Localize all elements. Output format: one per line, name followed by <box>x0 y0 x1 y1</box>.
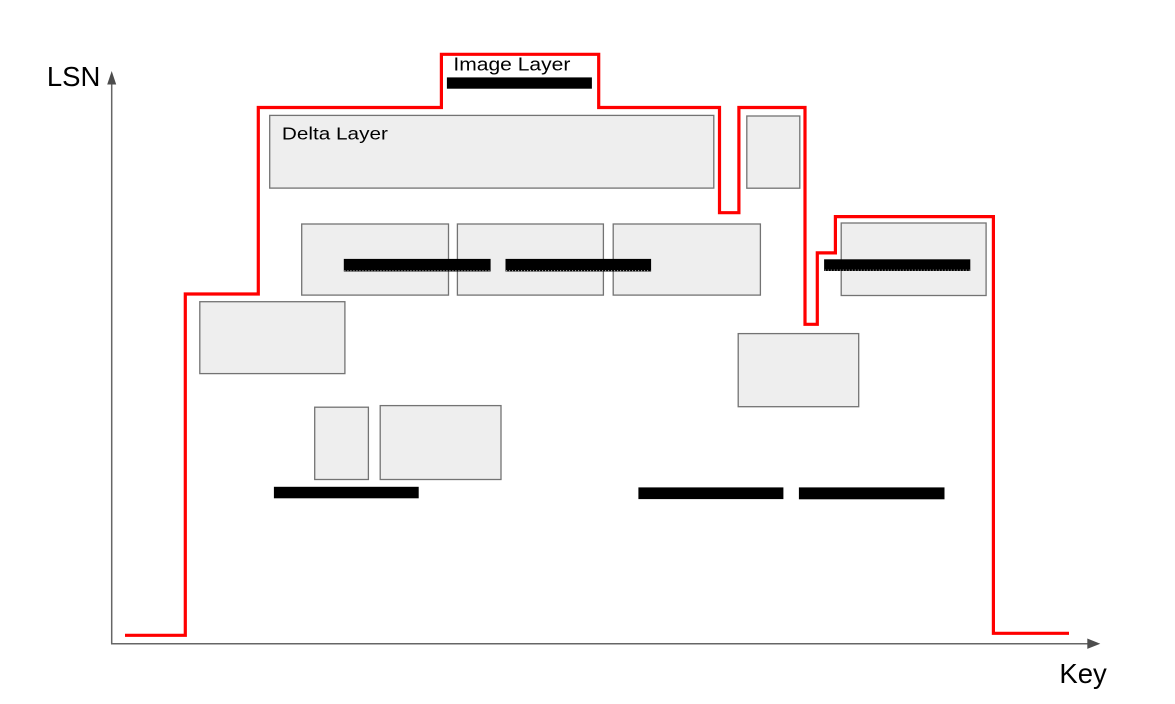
svg-text:Image Layer: Image Layer <box>453 54 570 75</box>
svg-text:Delta Layer: Delta Layer <box>282 124 388 144</box>
svg-text:Key: Key <box>1059 658 1107 689</box>
svg-text:LSN: LSN <box>47 61 101 92</box>
